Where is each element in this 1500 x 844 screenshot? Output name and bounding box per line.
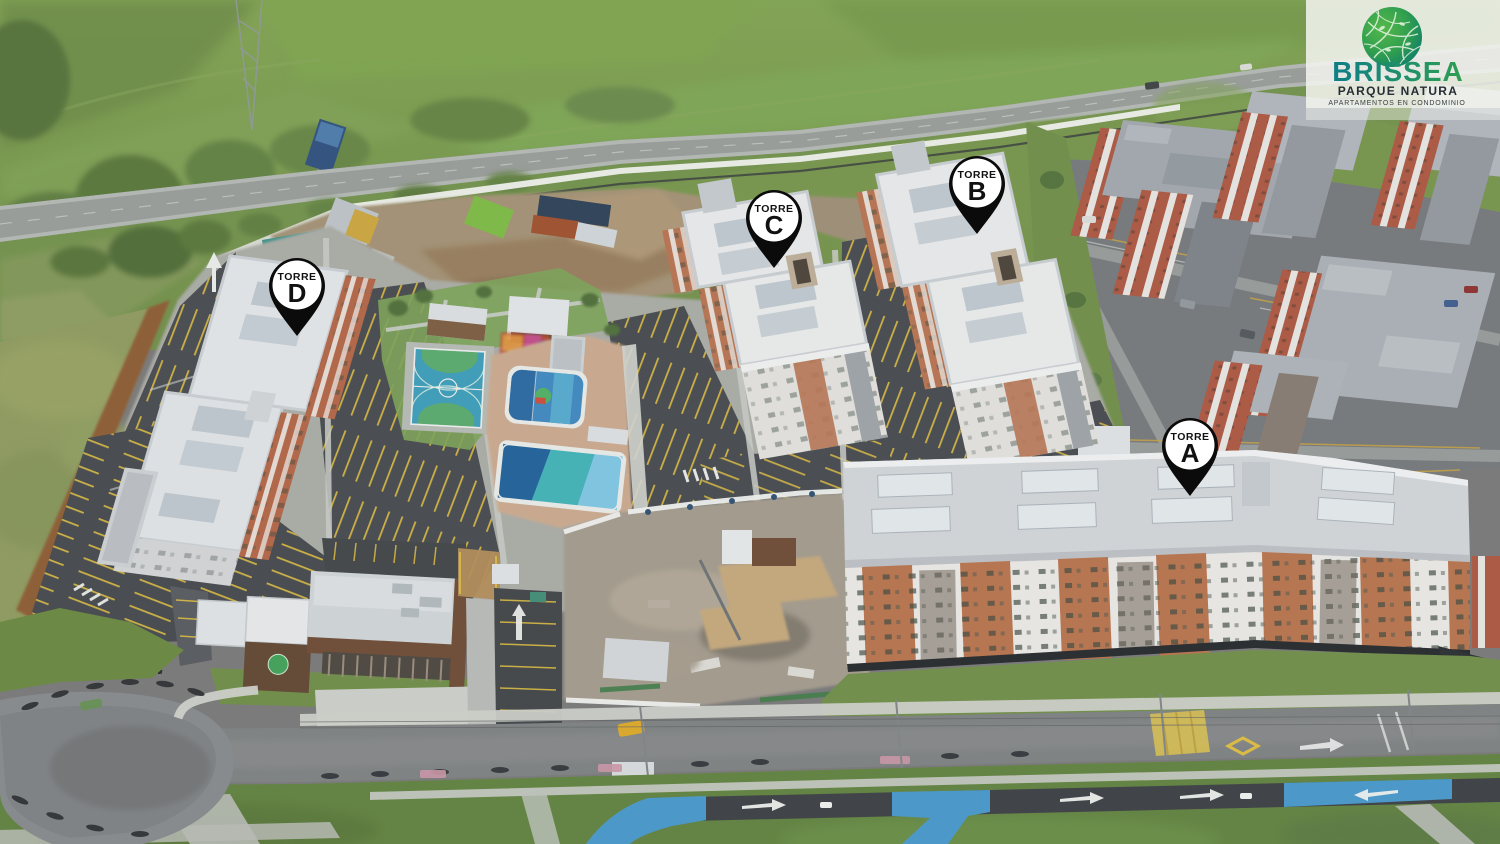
svg-text:APARTAMENTOS EN CONDOMINIO: APARTAMENTOS EN CONDOMINIO [1328, 100, 1465, 107]
svg-text:D: D [288, 278, 307, 308]
svg-text:BRISSEA: BRISSEA [1332, 56, 1463, 87]
svg-text:B: B [968, 176, 987, 206]
svg-text:PARQUE NATURA: PARQUE NATURA [1338, 84, 1458, 98]
svg-text:C: C [765, 210, 784, 240]
svg-text:A: A [1181, 438, 1200, 468]
